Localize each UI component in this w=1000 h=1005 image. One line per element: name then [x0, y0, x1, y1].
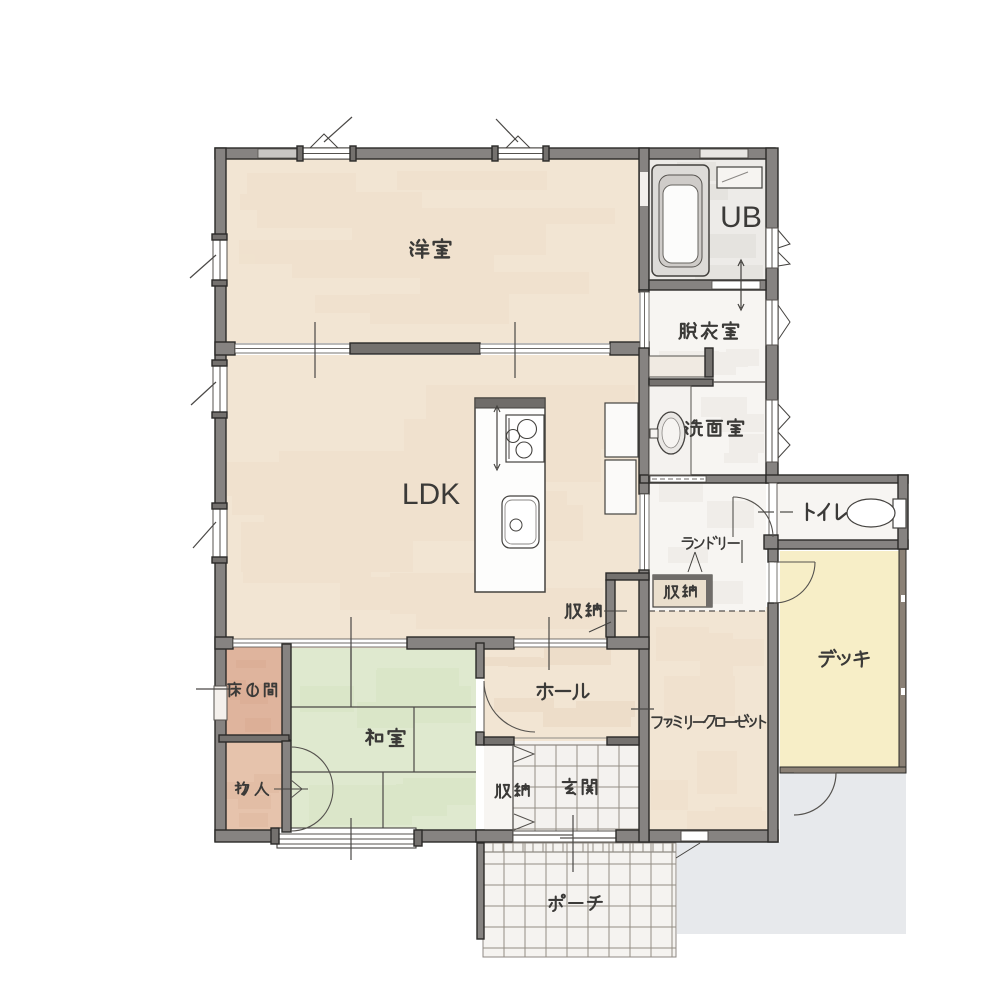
svg-text:UB: UB — [720, 201, 762, 234]
svg-text:LDK: LDK — [402, 478, 460, 511]
